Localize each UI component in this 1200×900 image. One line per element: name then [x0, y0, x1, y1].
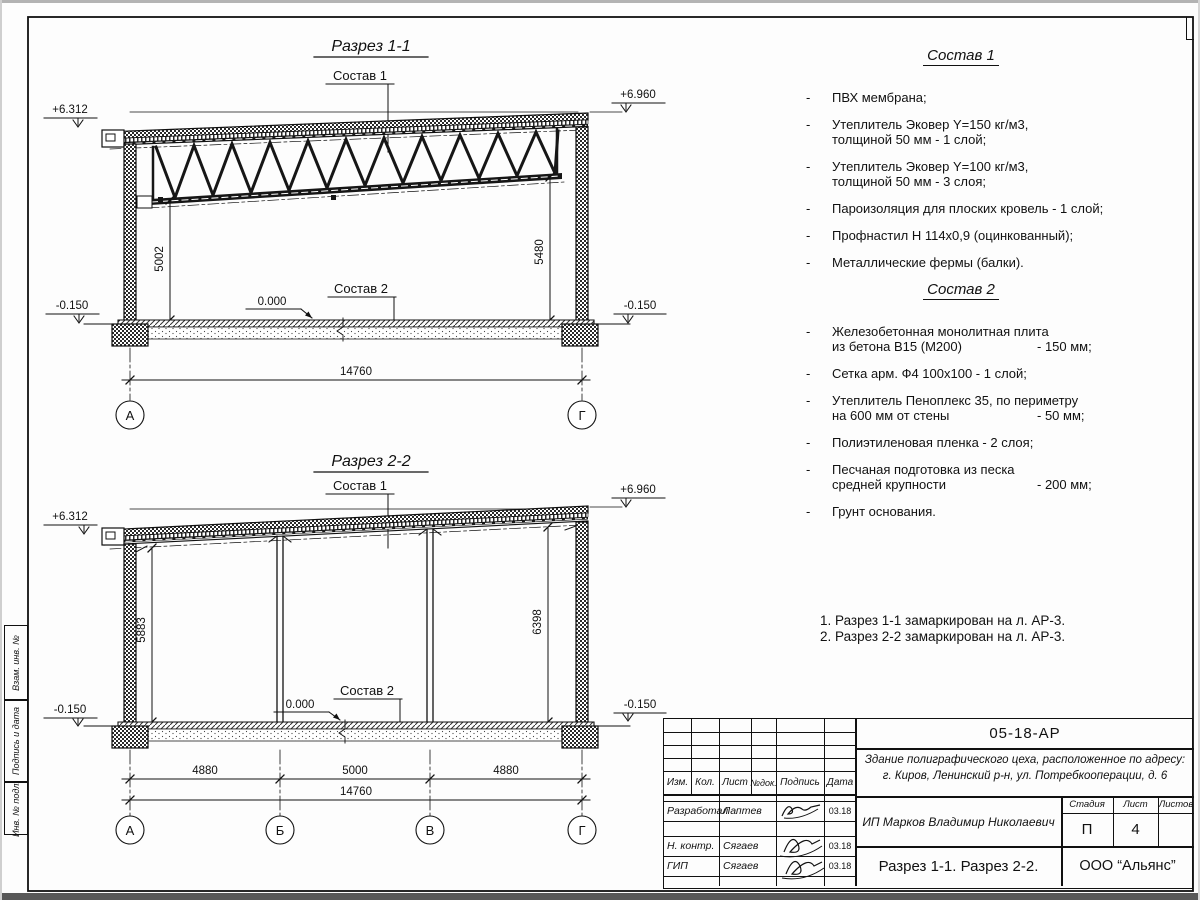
svg-text:А: А	[126, 823, 135, 838]
tb-sheet-label: Лист	[1113, 796, 1158, 813]
tb-date-gip: 03.18	[824, 856, 856, 876]
svg-text:6398: 6398	[532, 609, 544, 635]
section2-span-dims: 4880 5000 4880 14760	[122, 750, 590, 816]
section2-zero-mark: 0.000	[274, 699, 340, 720]
svg-text:Б: Б	[276, 823, 285, 838]
title-block: Изм. Кол. Лист №док. Подпись Дата Разраб…	[663, 718, 1193, 889]
signature-developer	[778, 800, 824, 822]
section1-floor-slab	[84, 318, 630, 346]
section1-axis-right: Г	[568, 401, 596, 429]
section-2-2-drawing: Разрез 2-2 Состав 1	[44, 453, 666, 844]
tb-stage-value: П	[1061, 813, 1113, 846]
section1-roof-label: Состав 1	[333, 68, 387, 83]
side-stamp-inv: Инв. № подл.	[4, 782, 28, 835]
section1-right-wall	[576, 127, 588, 322]
svg-text:В: В	[426, 823, 435, 838]
section2-dim-right: 6398	[532, 523, 552, 726]
svg-text:-0.150: -0.150	[56, 300, 89, 312]
section1-base-elev-left: -0.150	[46, 300, 99, 323]
svg-text:+6.960: +6.960	[620, 89, 656, 101]
tb-sheets-label: Листов	[1158, 796, 1194, 813]
svg-text:0.000: 0.000	[286, 699, 315, 711]
tb-date-developer: 03.18	[824, 801, 856, 821]
section-1-1-drawing: Разрез 1-1 Состав 1	[44, 38, 666, 429]
sostav1-list: -ПВХ мембрана; -Утеплитель Эковер Y=150 …	[800, 90, 1122, 270]
side-stamp-vzam: Взам. инв. №	[4, 625, 28, 700]
list-item: -Сетка арм. Ф4 100х100 - 1 слой;	[800, 366, 1122, 381]
section2-base-elev-right: -0.150	[614, 699, 666, 721]
section1-zero-mark: 0.000	[246, 296, 312, 318]
tb-name-ncontrol: Сягаев	[719, 836, 776, 856]
section1-dim-right: 5480	[534, 173, 554, 324]
tb-client: ИП Марков Владимир Николаевич	[856, 798, 1061, 846]
tb-date-ncontrol: 03.18	[824, 836, 856, 856]
composition-lists: Состав 1 -ПВХ мембрана; -Утеплитель Эков…	[800, 48, 1122, 531]
sostav2-heading: Состав 2	[800, 282, 1122, 300]
side-stamp-podpis: Подпись и дата	[4, 700, 28, 782]
section1-axis-left: А	[116, 401, 144, 429]
list-item: -Пароизоляция для плоских кровель - 1 сл…	[800, 201, 1122, 216]
tb-col-list: Лист	[719, 771, 751, 794]
svg-text:5883: 5883	[136, 617, 148, 643]
section2-floor-slab	[84, 720, 630, 748]
tb-role-developer: Разработал	[664, 801, 719, 821]
tb-company: ООО “Альянс”	[1061, 846, 1194, 886]
section2-dim-left: 5883	[136, 544, 156, 726]
section1-elev-left: +6.312	[44, 104, 97, 127]
svg-text:14760: 14760	[340, 786, 372, 798]
svg-text:5002: 5002	[154, 246, 166, 272]
svg-text:+6.312: +6.312	[52, 511, 88, 523]
svg-text:0.000: 0.000	[258, 296, 287, 308]
list-item: -Полиэтиленовая пленка - 2 слоя;	[800, 435, 1122, 450]
section2-elev-right: +6.960	[590, 484, 665, 507]
section2-left-wall	[124, 544, 136, 722]
tb-col-izm: Изм.	[664, 771, 691, 794]
svg-text:14760: 14760	[340, 366, 372, 378]
svg-text:Г: Г	[578, 408, 585, 423]
svg-text:Состав 2: Состав 2	[340, 683, 394, 698]
section2-title: Разрез 2-2	[331, 453, 410, 470]
list-item: -Металлические фермы (балки).	[800, 255, 1122, 270]
tb-object-line2: г. Киров, Ленинский р-н, ул. Потребкоопе…	[856, 766, 1194, 786]
section1-left-wall	[124, 144, 136, 322]
section2-axes: А Б В Г	[116, 816, 596, 844]
list-item: -Утеплитель Эковер Y=100 кг/м3,толщиной …	[800, 159, 1122, 189]
section2-roof-label: Состав 1	[333, 478, 387, 493]
drawing-sheet: Разрез 1-1 Состав 1	[0, 0, 1200, 900]
svg-text:-0.150: -0.150	[54, 704, 87, 716]
tb-name-gip: Сягаев	[719, 856, 776, 876]
frame-corner-box	[1186, 17, 1194, 40]
svg-text:5000: 5000	[342, 765, 368, 777]
svg-text:5480: 5480	[534, 239, 546, 265]
section1-elev-right: +6.960	[590, 89, 665, 112]
svg-text:4880: 4880	[192, 765, 218, 777]
tb-role-ncontrol: Н. контр.	[664, 836, 719, 856]
section2-base-elev-left: -0.150	[44, 704, 97, 726]
tb-stage-label: Стадия	[1061, 796, 1113, 813]
tb-sheet-value: 4	[1113, 813, 1158, 846]
list-item: -Профнастил Н 114х0,9 (оцинкованный);	[800, 228, 1122, 243]
sostav2-list: -Железобетонная монолитная плитаиз бетон…	[800, 324, 1122, 519]
signature-ncontrol-gip	[776, 832, 826, 880]
list-item: -Грунт основания.	[800, 504, 1122, 519]
list-item: -Железобетонная монолитная плитаиз бетон…	[800, 324, 1122, 354]
tb-col-podpis: Подпись	[776, 771, 824, 794]
tb-sheets-value	[1158, 813, 1194, 846]
svg-text:Состав 2: Состав 2	[334, 281, 388, 296]
tb-role-gip: ГИП	[664, 856, 719, 876]
note-line: 2. Разрез 2-2 замаркирован на л. АР-3.	[820, 629, 1065, 645]
tb-col-data: Дата	[824, 771, 856, 794]
note-line: 1. Разрез 1-1 замаркирован на л. АР-3.	[820, 613, 1065, 629]
section1-dim-left: 5002	[154, 196, 174, 324]
svg-text:+6.960: +6.960	[620, 484, 656, 496]
svg-text:4880: 4880	[493, 765, 519, 777]
svg-text:-0.150: -0.150	[624, 300, 657, 312]
section1-title: Разрез 1-1	[331, 38, 410, 55]
sostav1-heading: Состав 1	[800, 48, 1122, 66]
tb-col-dok: №док.	[751, 771, 776, 794]
list-item: -Утеплитель Эковер Y=150 кг/м3,толщиной …	[800, 117, 1122, 147]
section1-base-elev-right: -0.150	[614, 300, 666, 323]
tb-name-developer: Лаптев	[719, 801, 776, 821]
tb-sheet-title: Разрез 1-1. Разрез 2-2.	[856, 846, 1061, 886]
tb-doc-number: 05-18-АР	[856, 719, 1194, 748]
svg-text:А: А	[126, 408, 135, 423]
list-item: -Песчаная подготовка из пескасредней кру…	[800, 462, 1122, 492]
sheet-notes: 1. Разрез 1-1 замаркирован на л. АР-3. 2…	[820, 613, 1065, 645]
section2-right-wall	[576, 522, 588, 722]
section1-total-dim: 14760	[122, 348, 590, 400]
svg-text:Г: Г	[578, 823, 585, 838]
list-item: -Утеплитель Пеноплекс 35, по периметруна…	[800, 393, 1122, 423]
tb-col-kol: Кол.	[691, 771, 719, 794]
section2-elev-left: +6.312	[44, 511, 97, 534]
svg-text:+6.312: +6.312	[52, 104, 88, 116]
list-item: -ПВХ мембрана;	[800, 90, 1122, 105]
svg-text:-0.150: -0.150	[624, 699, 657, 711]
